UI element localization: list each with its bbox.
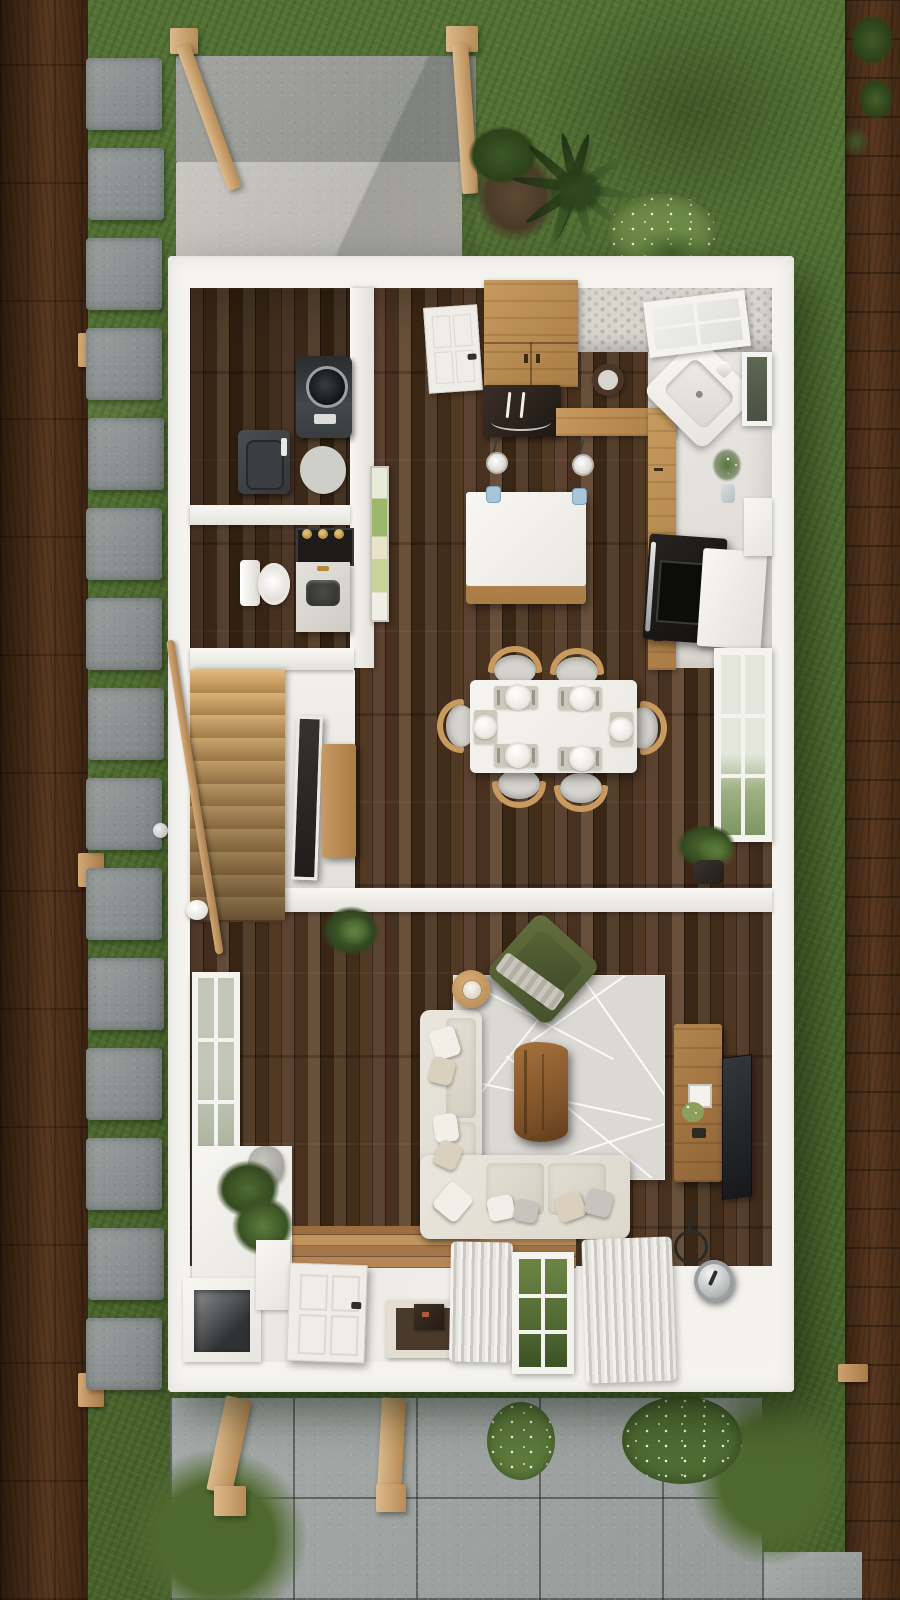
stepping-stone — [86, 238, 162, 310]
stepping-stone — [86, 1138, 162, 1210]
stepping-stone — [86, 1318, 162, 1390]
floor-lamp-ring — [674, 1230, 708, 1264]
door-handle — [467, 353, 476, 360]
sink-faucet — [317, 566, 329, 571]
dining-window — [714, 648, 772, 842]
plant-pot — [694, 860, 724, 884]
table-grain — [524, 1050, 527, 1134]
door-handle — [351, 1302, 361, 1309]
window-mullion — [198, 1038, 234, 1042]
leaning-artwork — [370, 466, 389, 622]
door-panel — [453, 314, 473, 347]
stepping-stone — [86, 508, 162, 580]
window-mullion — [541, 1259, 545, 1367]
right-wood-fence — [845, 0, 900, 1600]
round-wall-mirror — [592, 364, 624, 396]
vine-on-fence — [842, 126, 870, 158]
door-panel — [330, 1315, 359, 1356]
kitchen-island — [466, 492, 586, 604]
stair-tread — [190, 670, 285, 695]
cabinet-seam — [530, 342, 532, 387]
glass-tumbler — [572, 488, 587, 505]
porch-post-cap — [214, 1486, 246, 1516]
door-panel — [298, 1314, 327, 1355]
white-flower-bush — [487, 1402, 555, 1480]
parcel-label — [422, 1312, 429, 1317]
stair-tread — [190, 738, 285, 763]
tv-console — [674, 1024, 722, 1182]
entry-curtain-right — [582, 1236, 677, 1383]
stepping-stone — [86, 778, 162, 850]
place-setting — [494, 686, 538, 709]
entry-window — [512, 1252, 574, 1374]
stair-tread — [190, 693, 285, 718]
stair-tread — [190, 784, 285, 809]
stepping-stone — [88, 688, 164, 760]
stepping-stone-path — [86, 58, 166, 1458]
wall-powder-stairs — [190, 648, 354, 670]
interior-door — [423, 304, 483, 394]
washer-drum — [306, 366, 348, 408]
stair-tread — [190, 715, 285, 740]
place-setting — [474, 710, 497, 744]
kitchen-upper-cabinets — [484, 280, 578, 387]
stepping-stone — [88, 148, 164, 220]
throw-pillow — [512, 1198, 539, 1224]
sconce-bulb — [318, 529, 328, 539]
stepping-stone — [86, 598, 162, 670]
entry-bench — [322, 744, 356, 858]
wall-plant — [712, 448, 744, 504]
fence-rail — [838, 1364, 868, 1382]
place-setting — [558, 747, 602, 770]
rug-pattern-line — [577, 975, 665, 1103]
entry-curtain-left — [449, 1241, 513, 1362]
entry-side-cabinet — [256, 1240, 290, 1310]
kitchen-wall-cabinet — [744, 498, 772, 556]
washer-control-panel — [314, 414, 336, 424]
stepping-stone — [86, 1048, 162, 1120]
floor-plant — [322, 906, 382, 964]
sprinkler-head — [153, 823, 168, 838]
drum-slot — [708, 1270, 718, 1286]
fridge-gloss — [491, 413, 551, 431]
left-wood-fence — [0, 0, 88, 1600]
newel-post-cap — [186, 900, 208, 920]
toilet-bowl — [258, 563, 290, 605]
wall-laundry-powder — [190, 505, 350, 525]
metal-drum-table — [694, 1260, 734, 1302]
cabinet-handle — [536, 354, 540, 363]
door-panel — [434, 351, 454, 384]
pendant-light — [486, 452, 508, 474]
table-lamp — [462, 980, 482, 1000]
plant-flowers — [722, 454, 742, 474]
kitchen-white-counter — [697, 548, 768, 650]
dryer-door — [246, 440, 284, 490]
cabinet-handle — [524, 354, 528, 363]
place-setting — [558, 687, 602, 710]
stair-tread — [190, 761, 285, 786]
island-countertop — [466, 492, 586, 586]
place-setting — [610, 712, 633, 746]
sink-basin — [306, 580, 340, 606]
plant-vase — [721, 484, 735, 503]
stepping-stone — [88, 958, 164, 1030]
stepping-stone — [86, 328, 162, 400]
table-grain — [542, 1054, 544, 1130]
scene-3d-floorplan — [0, 0, 900, 1600]
console-decor-item — [692, 1128, 706, 1138]
dining-chair — [492, 768, 546, 808]
stair-tread — [190, 806, 285, 831]
porch-post-cap — [376, 1484, 406, 1512]
dining-chair — [554, 772, 608, 812]
kitchen-window-right-wall — [742, 352, 772, 426]
cubby-opening — [194, 1290, 250, 1352]
coffee-table — [514, 1042, 568, 1142]
window-mullion — [741, 655, 745, 835]
front-door — [286, 1263, 367, 1364]
pendant-light — [572, 454, 594, 476]
window-mullion — [214, 978, 218, 1162]
stepping-stone — [88, 418, 164, 490]
stepping-stone — [86, 868, 162, 940]
entry-cubby-bench — [183, 1278, 261, 1362]
porch-post-beam — [377, 1397, 406, 1490]
patio-shadow — [250, 56, 476, 262]
potted-plant — [676, 824, 738, 886]
stepping-stone — [86, 58, 162, 130]
dryer-display — [281, 438, 287, 456]
window-mullion — [519, 1294, 567, 1298]
window-pane — [747, 357, 767, 421]
cabinet-handle — [654, 468, 663, 471]
sconce-bulb — [334, 529, 344, 539]
sconce-bulb — [302, 529, 312, 539]
palm-core — [548, 168, 604, 214]
mat-parcel — [414, 1304, 444, 1330]
plant-foliage — [338, 916, 372, 946]
console-flowers — [682, 1102, 704, 1122]
door-panel — [432, 315, 452, 348]
throw-pillow — [432, 1112, 460, 1143]
fridge — [483, 385, 561, 437]
window-mullion — [198, 1100, 234, 1104]
toilet-tank — [240, 560, 260, 606]
vine-on-fence — [850, 14, 894, 66]
stepping-stone — [88, 1228, 164, 1300]
vine-on-fence — [858, 78, 894, 120]
glass-tumbler — [486, 486, 501, 503]
living-window-left-wall — [192, 972, 240, 1168]
window-mullion — [721, 714, 765, 718]
door-panel — [299, 1274, 328, 1311]
white-flower-bush — [622, 1396, 742, 1484]
window-mullion — [519, 1330, 567, 1334]
window-mullion — [721, 774, 765, 778]
shrub — [468, 126, 538, 184]
place-setting — [494, 744, 538, 767]
tv-screen — [722, 1054, 752, 1200]
